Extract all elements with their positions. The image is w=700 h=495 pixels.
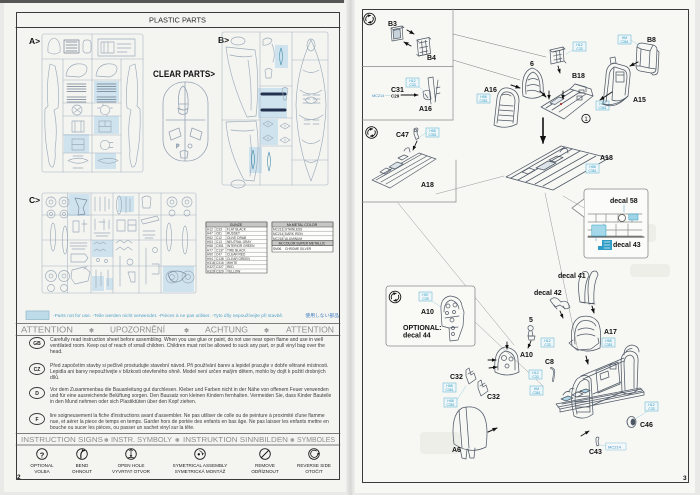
svg-text:C43: C43 [589,449,602,456]
svg-text:B8: B8 [647,37,656,44]
svg-text:C361: C361 [620,40,628,44]
svg-text:MC214: MC214 [608,445,622,450]
svg-text:3: 3 [683,475,687,482]
svg-text:C361: C361 [445,388,453,392]
svg-text:C361: C361 [588,169,596,173]
svg-text:A15: A15 [633,97,646,104]
svg-text:C8: C8 [545,359,554,366]
svg-text:C33: C33 [544,343,550,347]
svg-text:C33: C33 [576,47,582,51]
svg-text:C361: C361 [598,106,606,110]
svg-text:C351: C351 [446,403,454,407]
svg-text:C47: C47 [396,132,409,139]
svg-text:A10: A10 [520,352,533,359]
svg-text:A18: A18 [600,155,613,162]
svg-text:5: 5 [529,317,533,324]
svg-text:A6: A6 [452,447,461,454]
svg-text:A16: A16 [419,106,432,113]
svg-text:OPTIONAL:: OPTIONAL: [403,325,442,332]
svg-text:A18: A18 [421,182,434,189]
svg-text:C39: C39 [422,297,428,301]
svg-text:C361: C361 [532,391,540,395]
svg-text:A10: A10 [421,309,434,316]
svg-text:decal 44: decal 44 [403,333,431,340]
svg-text:C33: C33 [648,407,654,411]
svg-text:MC214: MC214 [372,94,384,98]
svg-text:C33: C33 [532,375,538,379]
svg-text:C32: C32 [487,394,500,401]
svg-text:B4: B4 [427,55,436,62]
svg-text:6: 6 [530,61,534,68]
svg-text:A16: A16 [484,87,497,94]
svg-text:C29: C29 [391,94,400,99]
svg-text:C32: C32 [450,374,463,381]
svg-text:A17: A17 [604,329,617,336]
svg-text:C46: C46 [640,422,653,429]
svg-text:C33: C33 [409,83,415,87]
svg-text:C351: C351 [479,99,487,103]
svg-text:C351: C351 [604,343,612,347]
svg-text:decal 43: decal 43 [613,242,641,249]
svg-text:decal 58: decal 58 [610,198,638,205]
svg-text:B18: B18 [572,73,585,80]
svg-text:decal 42: decal 42 [534,290,562,297]
svg-text:C351: C351 [428,133,436,137]
